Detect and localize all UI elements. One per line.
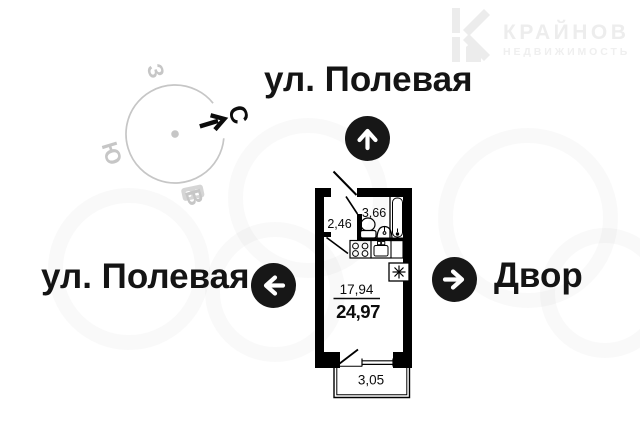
total-area-label: 24,97	[336, 301, 380, 322]
bathtub	[390, 196, 405, 241]
kitchen-counter	[350, 241, 403, 259]
brand-k-icon	[452, 8, 495, 62]
north-arrow-icon	[198, 112, 227, 134]
floorplan-page: КРАЙНОВ НЕДВИЖИМОСТЬ С В Ю З ул. Полевая…	[0, 0, 640, 433]
up-arrow-icon	[345, 116, 390, 161]
compass-north-label: С	[222, 102, 254, 127]
compass-east-label: В	[180, 186, 209, 209]
balcony-size-label: 3,05	[358, 373, 384, 388]
up-arrow-badge	[345, 116, 390, 161]
floor-plan: 2,46 3,66 17,94 24,97 3,05	[313, 168, 415, 401]
balcony-door-swing	[339, 350, 358, 365]
balcony-window	[340, 359, 393, 367]
bathroom-area-label: 3,66	[362, 206, 386, 220]
compass-west-label: З	[142, 61, 170, 82]
brand-logo: КРАЙНОВ НЕДВИЖИМОСТЬ	[452, 8, 495, 62]
bathroom-door-swing	[346, 197, 358, 215]
stove-burners	[350, 241, 371, 259]
right-arrow-badge	[432, 257, 477, 302]
entrance-door-swing	[334, 172, 357, 196]
compass-icon: С В Ю З	[85, 44, 265, 224]
compass-center-dot	[170, 129, 179, 138]
left-arrow-badge	[251, 263, 296, 308]
hallway-area-label: 2,46	[327, 217, 351, 231]
right-arrow-icon	[432, 257, 477, 302]
hallway-door-swing	[327, 238, 349, 254]
room-area-label: 17,94	[340, 282, 374, 297]
left-arrow-icon	[251, 263, 296, 308]
kitchen-sink	[371, 241, 391, 259]
street-label-top: ул. Полевая	[264, 62, 473, 97]
street-label-left: ул. Полевая	[41, 259, 250, 294]
toilet	[361, 218, 377, 238]
refrigerator	[389, 263, 409, 281]
brand-subtitle: НЕДВИЖИМОСТЬ	[503, 47, 630, 58]
yard-label: Двор	[494, 258, 583, 293]
compass-south-label: Ю	[97, 139, 128, 168]
brand-name: КРАЙНОВ	[503, 22, 630, 43]
